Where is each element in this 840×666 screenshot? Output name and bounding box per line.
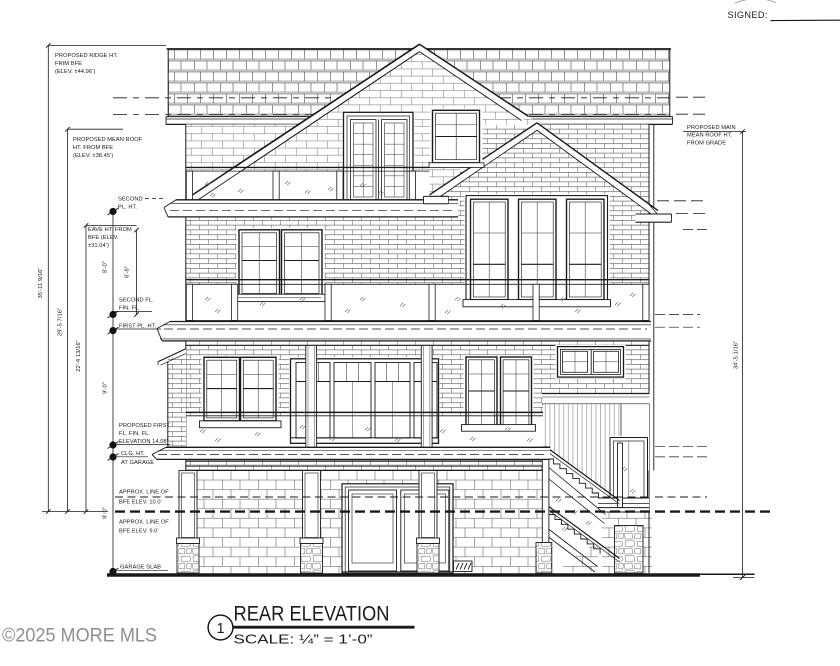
svg-text:1: 1 — [216, 621, 224, 637]
svg-text:HT. FROM BFE: HT. FROM BFE — [73, 145, 113, 151]
svg-text:BFE (ELEV.: BFE (ELEV. — [88, 235, 119, 241]
svg-text:APPROX. LINE OF: APPROX. LINE OF — [119, 490, 169, 496]
svg-text:SIGNED:: SIGNED: — [728, 10, 768, 20]
svg-text:9'-0": 9'-0" — [103, 382, 109, 394]
svg-text:6'-8": 6'-8" — [125, 266, 131, 278]
svg-text:FROM GRADE: FROM GRADE — [687, 140, 726, 146]
svg-text:©2025 MORE MLS: ©2025 MORE MLS — [2, 625, 157, 647]
svg-text:PROPOSED MAIN: PROPOSED MAIN — [687, 125, 736, 131]
svg-text:EAVE HT. FROM: EAVE HT. FROM — [88, 227, 132, 233]
svg-text:29'-5 7/16": 29'-5 7/16" — [58, 308, 64, 336]
svg-text:9'-0": 9'-0" — [103, 507, 109, 519]
svg-text:REAR ELEVATION: REAR ELEVATION — [234, 603, 390, 626]
svg-text:SCALE: ¼” = 1’-0”: SCALE: ¼” = 1’-0” — [234, 633, 373, 647]
svg-text:ELEVATION 14.08’: ELEVATION 14.08’ — [119, 439, 168, 445]
svg-text:FRIM BFE: FRIM BFE — [55, 61, 82, 67]
svg-text:MEAN ROOF HT.: MEAN ROOF HT. — [687, 133, 733, 139]
svg-text:PROPOSED RIDGE HT.: PROPOSED RIDGE HT. — [55, 53, 118, 59]
svg-text:34'-5 1/16": 34'-5 1/16" — [734, 341, 740, 369]
svg-text:PL. HT.: PL. HT. — [118, 205, 137, 211]
svg-text:AT GARAGE: AT GARAGE — [121, 460, 154, 466]
svg-text:(ELEV. ±38.45’): (ELEV. ±38.45’) — [73, 153, 113, 159]
svg-text:SECOND: SECOND — [118, 197, 143, 203]
svg-text:BFE ELEV. 9.0’: BFE ELEV. 9.0’ — [119, 529, 159, 535]
svg-text:8'-0": 8'-0" — [103, 261, 109, 273]
svg-text:(ELEV. ±44.96’): (ELEV. ±44.96’) — [55, 69, 95, 75]
svg-text:FIRST PL. HT.: FIRST PL. HT. — [119, 324, 157, 330]
svg-text:CLG. HT.: CLG. HT. — [121, 451, 145, 457]
svg-text:±31.04’): ±31.04’) — [88, 243, 109, 249]
svg-text:35'-11 9/16": 35'-11 9/16" — [38, 267, 44, 298]
svg-text:FIN. FL.: FIN. FL. — [119, 306, 140, 312]
svg-text:PROPOSED MEAN ROOF: PROPOSED MEAN ROOF — [73, 137, 143, 143]
svg-text:PROPOSED FIRST: PROPOSED FIRST — [119, 423, 170, 429]
svg-text:BFE ELEV. 10.0’: BFE ELEV. 10.0’ — [119, 500, 162, 506]
svg-text:GARAGE SLAB: GARAGE SLAB — [120, 565, 161, 571]
svg-text:SECOND FL.: SECOND FL. — [119, 298, 154, 304]
svg-text:22'-4 13/16": 22'-4 13/16" — [76, 340, 82, 371]
svg-text:APPROX. LINE OF: APPROX. LINE OF — [119, 520, 169, 526]
svg-text:FL. FIN. FL.: FL. FIN. FL. — [119, 431, 150, 437]
